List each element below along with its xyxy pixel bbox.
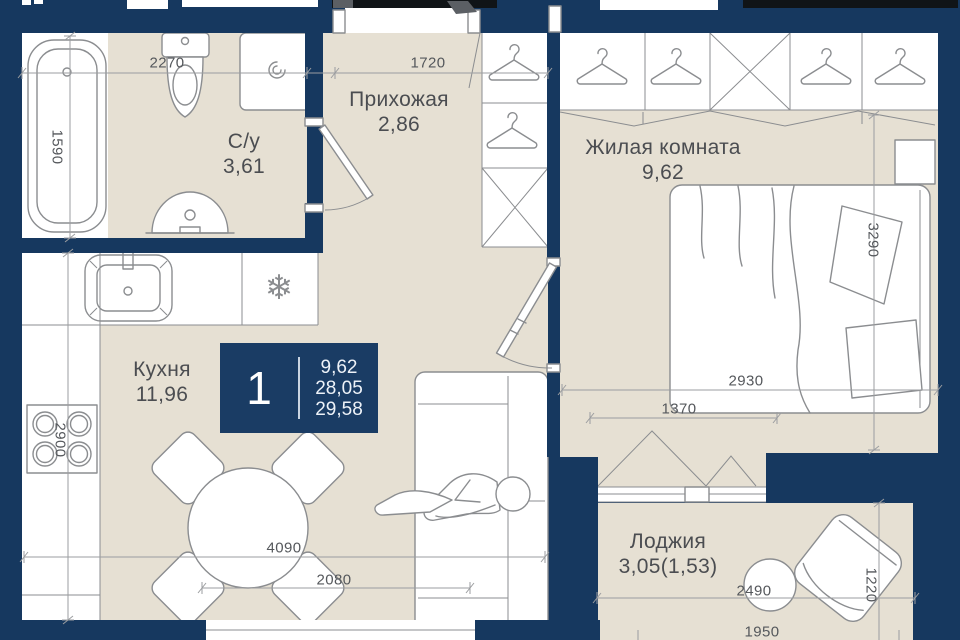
room-area: 3,61 (223, 154, 265, 179)
dim-window-width: 1370 (662, 401, 697, 418)
bed-icon (670, 185, 930, 413)
room-area: 9,62 (585, 160, 741, 185)
washing-machine-icon (240, 33, 313, 110)
room-label-kitchen: Кухня 11,96 (133, 357, 191, 407)
room-name: Прихожая (349, 87, 449, 112)
dim-kitchen-width: 4090 (267, 540, 302, 557)
pillow-icon (846, 320, 922, 398)
dim-kitchen-window-width: 2080 (317, 572, 352, 589)
room-label-living: Жилая комната 9,62 (585, 135, 741, 185)
dim-loggia-width: 2490 (737, 583, 772, 600)
dim-loggia-glazing-width: 1950 (745, 624, 780, 640)
room-name: Лоджия (619, 529, 718, 554)
apartment-stats-badge: 1 9,62 28,05 29,58 (220, 343, 378, 433)
floor-plan: С/у 3,61 Прихожая 2,86 Жилая комната 9,6… (0, 0, 960, 640)
room-area: 2,86 (349, 112, 449, 137)
dining-table-icon (188, 468, 308, 588)
room-label-bathroom: С/у 3,61 (223, 129, 265, 179)
room-label-hallway: Прихожая 2,86 (349, 87, 449, 137)
room-area: 11,96 (133, 382, 191, 407)
living-area-value: 9,62 (300, 357, 378, 378)
room-label-loggia: Лоджия 3,05(1,53) (619, 529, 718, 579)
room-name: Жилая комната (585, 135, 741, 160)
rooms-count: 1 (220, 361, 298, 415)
dim-bed-wall: 3290 (865, 223, 882, 258)
dim-kitchen-depth: 2900 (52, 423, 69, 458)
floor-plan-drawing (0, 0, 960, 640)
area-without-loggia-value: 28,05 (300, 378, 378, 399)
dim-loggia-depth: 1220 (863, 568, 880, 603)
dim-living-width: 2930 (729, 373, 764, 390)
total-area-value: 29,58 (300, 399, 378, 420)
kitchen-window (206, 620, 475, 640)
snowflake-icon: ❄ (265, 268, 294, 308)
dim-bath-width: 2270 (150, 55, 185, 72)
dim-bath-depth: 1590 (49, 130, 66, 165)
wardrobe (560, 33, 938, 110)
nightstand-icon (895, 140, 935, 184)
dim-hall-width: 1720 (411, 55, 446, 72)
room-area: 3,05(1,53) (619, 554, 718, 579)
room-name: С/у (223, 129, 265, 154)
room-name: Кухня (133, 357, 191, 382)
